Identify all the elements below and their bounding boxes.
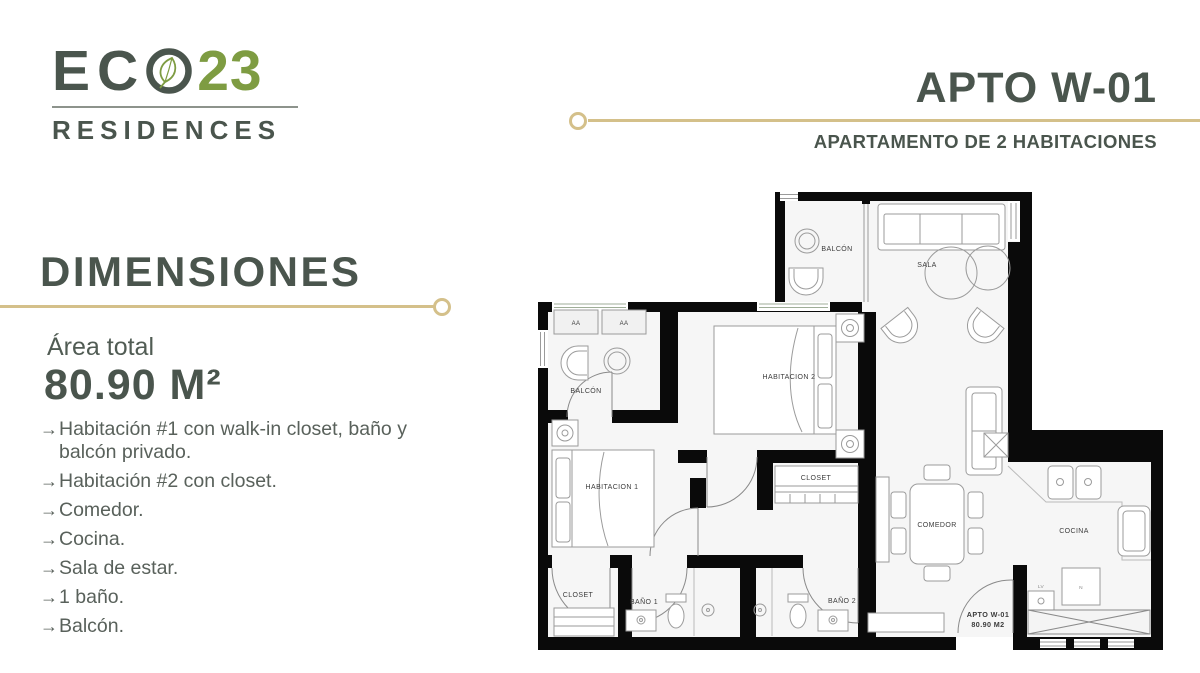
header-accent-line: [588, 119, 1200, 122]
brand-logo: EC 23 RESIDENCES: [52, 40, 302, 146]
area-total-label: Área total: [47, 333, 154, 362]
feature-text: 1 baño.: [59, 586, 415, 609]
bed-icon: [552, 450, 654, 547]
brand-name: EC: [52, 43, 145, 100]
vanity-sink-icon: [626, 610, 656, 631]
leaf-o-icon: [143, 45, 195, 97]
ac-label: AA: [620, 321, 629, 327]
ac-label: AA: [572, 321, 581, 327]
feature-text: Habitación #1 con walk-in closet, baño y…: [59, 418, 415, 464]
area-total-value: 80.90 M²: [44, 361, 222, 410]
appliance-label-pantry: N: [1079, 585, 1083, 591]
header-accent-ring-icon: [569, 112, 587, 130]
appliance-label-washer: LV: [1038, 584, 1045, 590]
arrow-bullet-icon: →: [40, 615, 59, 638]
room-label-closet2: CLOSET: [801, 475, 832, 482]
feature-text: Sala de estar.: [59, 557, 415, 580]
feature-item: →Comedor.: [40, 499, 470, 522]
feature-item: →Cocina.: [40, 528, 470, 551]
nightstand-icon: [552, 420, 578, 446]
feature-item: →Balcón.: [40, 615, 470, 638]
loveseat-icon: [966, 387, 1002, 475]
brand-logo-row: EC 23: [52, 40, 302, 102]
room-label-dining: COMEDOR: [917, 522, 956, 529]
feature-item: →Habitación #2 con closet.: [40, 470, 470, 493]
arrow-bullet-icon: →: [40, 418, 59, 464]
apartment-title: APTO W-01: [916, 64, 1158, 113]
arrow-bullet-icon: →: [40, 499, 59, 522]
brand-sub-name: RESIDENCES: [52, 115, 302, 146]
vanity-sink-icon: [818, 610, 848, 631]
arrow-bullet-icon: →: [40, 470, 59, 493]
feature-text: Habitación #2 con closet.: [59, 470, 415, 493]
water-heater-icon: [984, 433, 1008, 457]
logo-divider: [52, 106, 298, 108]
room-label-closet-hall: CLOSET: [563, 592, 594, 599]
sink-icon: [1048, 466, 1073, 499]
sink-icon: [1076, 466, 1101, 499]
room-label-balcony-top: BALCÓN: [821, 244, 852, 253]
tv-console-icon: [876, 477, 889, 562]
dimensions-accent-line: [0, 305, 434, 308]
shaft-hatch-icon: [1028, 610, 1150, 634]
flyer-page: EC 23 RESIDENCES APTO W-01 APARTAMENTO D…: [0, 0, 1200, 673]
arrow-bullet-icon: →: [40, 586, 59, 609]
arrow-bullet-icon: →: [40, 557, 59, 580]
unit-area: 80.90 M2: [971, 620, 1004, 629]
apartment-subtitle: APARTAMENTO DE 2 HABITACIONES: [814, 131, 1157, 153]
feature-item: →Habitación #1 con walk-in closet, baño …: [40, 418, 470, 464]
closet-shelves-icon: [554, 608, 614, 636]
room-label-sala: SALA: [917, 262, 937, 269]
brand-number: 23: [197, 43, 262, 100]
room-label-kitchen: COCINA: [1059, 528, 1089, 535]
feature-text: Balcón.: [59, 615, 415, 638]
room-label-balcony-left: BALCÓN: [570, 386, 601, 395]
closet-shelves-icon: [775, 466, 858, 503]
feature-item: →Sala de estar.: [40, 557, 470, 580]
feature-text: Cocina.: [59, 528, 415, 551]
floorplan: BALCÓN SALA HABITACION 2 AA AA BALCÓN HA…: [530, 185, 1175, 650]
feature-item: →1 baño.: [40, 586, 470, 609]
room-label-bedroom1: HABITACION 1: [586, 484, 639, 491]
arrow-bullet-icon: →: [40, 528, 59, 551]
sideboard-icon: [868, 613, 944, 632]
dimensions-accent-ring-icon: [433, 298, 451, 316]
sofa-icon: [878, 204, 1005, 250]
room-label-bedroom2: HABITACION 2: [763, 374, 816, 381]
feature-list: →Habitación #1 con walk-in closet, baño …: [40, 418, 470, 644]
feature-text: Comedor.: [59, 499, 415, 522]
toilet-icon: [788, 594, 808, 602]
toilet-icon: [666, 594, 686, 602]
washer-icon: [1028, 591, 1054, 612]
room-label-bath1: BAÑO 1: [630, 597, 658, 606]
room-label-bath2: BAÑO 2: [828, 596, 856, 605]
unit-label: APTO W-01: [967, 610, 1009, 619]
dimensions-heading: DIMENSIONES: [40, 248, 362, 296]
